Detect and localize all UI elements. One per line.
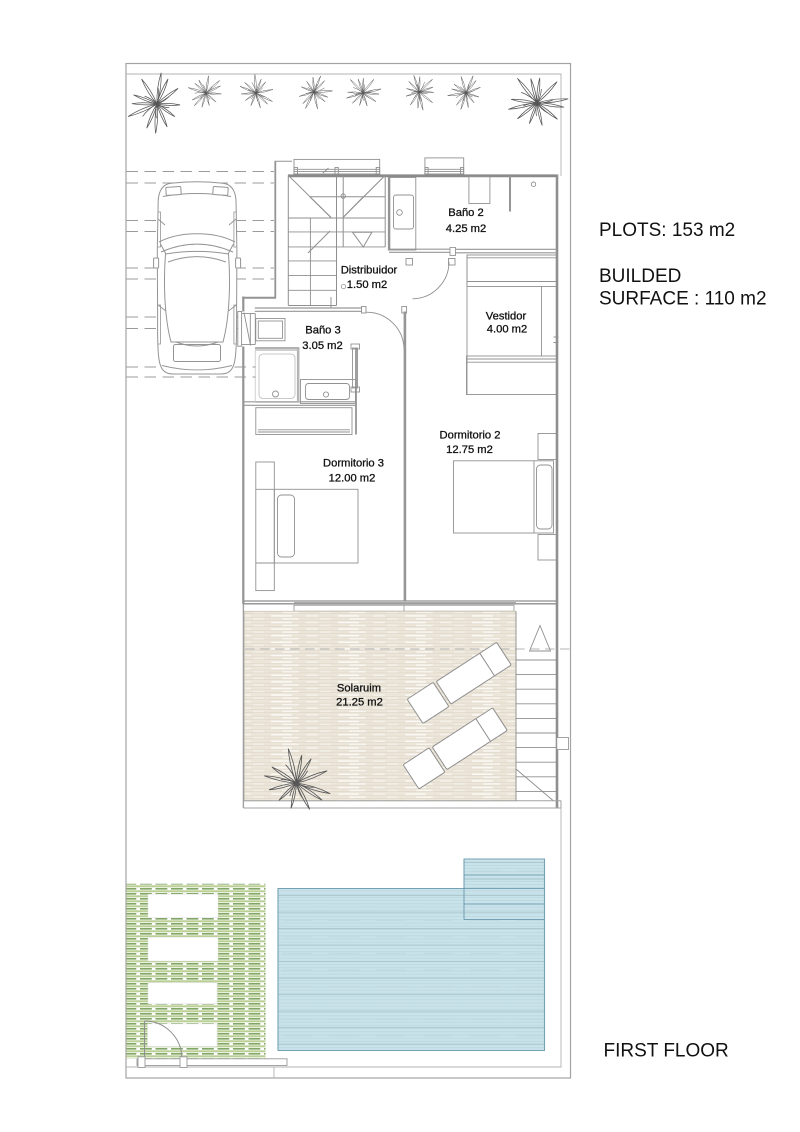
svg-text:4.25 m2: 4.25 m2	[446, 223, 486, 235]
svg-text:Solaruim: Solaruim	[337, 683, 381, 695]
svg-text:Dormitorio 2: Dormitorio 2	[440, 430, 501, 442]
svg-text:Baño 2: Baño 2	[448, 207, 483, 219]
svg-text:FIRST FLOOR: FIRST FLOOR	[604, 1041, 729, 1062]
svg-text:3.05 m2: 3.05 m2	[302, 340, 342, 352]
svg-text:4.00 m2: 4.00 m2	[487, 324, 527, 336]
svg-text:PLOTS: 153 m2: PLOTS: 153 m2	[599, 220, 735, 241]
svg-text:Distribuidor: Distribuidor	[341, 265, 398, 277]
svg-text:Vestidor: Vestidor	[486, 311, 527, 323]
svg-text:SURFACE : 110 m2: SURFACE : 110 m2	[599, 289, 767, 310]
svg-text:12.75 m2: 12.75 m2	[446, 444, 493, 456]
svg-text:Dormitorio 3: Dormitorio 3	[323, 458, 384, 470]
svg-text:Baño 3: Baño 3	[305, 325, 340, 337]
svg-text:21.25 m2: 21.25 m2	[336, 697, 383, 709]
svg-text:12.00 m2: 12.00 m2	[329, 473, 376, 485]
svg-text:1.50 m2: 1.50 m2	[347, 279, 387, 291]
svg-text:BUILDED: BUILDED	[599, 266, 681, 287]
